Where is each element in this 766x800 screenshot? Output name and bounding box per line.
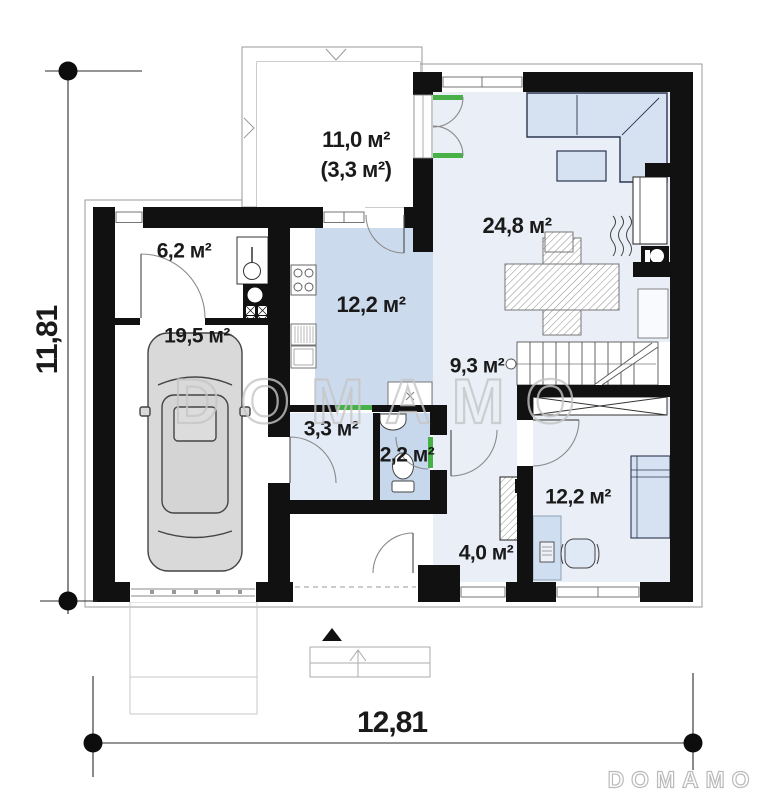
watermark-center: DOMAMO xyxy=(174,366,596,438)
dimension-height-label: 11,81 xyxy=(33,306,63,374)
computer-icon xyxy=(540,542,554,562)
window-icon xyxy=(556,582,640,602)
duct-niche xyxy=(638,289,668,338)
dimension-marker xyxy=(84,734,103,753)
desk-icon xyxy=(533,516,561,580)
slope-arrow-right-icon xyxy=(244,118,254,138)
dimension-marker xyxy=(59,62,78,81)
cooktop-icon xyxy=(291,265,316,295)
bed-icon xyxy=(631,456,670,538)
room-label-living-room: 24,8 м² xyxy=(482,215,551,237)
window-icon xyxy=(115,207,143,228)
entrance-arrow-icon xyxy=(322,628,342,641)
room-label-terrace-sub: (3,3 м²) xyxy=(321,159,392,181)
room-label-wc: 2,2 м² xyxy=(380,445,435,466)
dimension-marker xyxy=(59,592,78,611)
desk-chair-icon xyxy=(561,539,599,568)
floor-plan-canvas: 11,0 м² (3,3 м²) 6,2 м² 19,5 м² 12,2 м² … xyxy=(0,0,766,800)
room-label-garage: 19,5 м² xyxy=(164,326,230,347)
kitchen-vent-icon xyxy=(291,324,316,345)
window-icon xyxy=(323,207,365,228)
entrance-opening xyxy=(293,582,418,602)
coffee-table-icon xyxy=(557,151,606,181)
water-heater-icon xyxy=(237,237,268,284)
room-label-terrace: 11,0 м² xyxy=(322,129,390,151)
room-label-bedroom: 12,2 м² xyxy=(545,487,611,508)
dimension-width-label: 12,81 xyxy=(357,708,427,738)
window-icon xyxy=(442,72,523,92)
watermark-corner: DOMAMO xyxy=(608,767,757,794)
slope-arrow-down-icon xyxy=(326,49,346,60)
porch-steps xyxy=(310,647,430,677)
garage-door-icon xyxy=(130,582,256,602)
room-label-kitchen: 12,2 м² xyxy=(336,294,405,316)
dimension-marker xyxy=(684,734,703,753)
car-mirror-left xyxy=(140,407,150,416)
window-icon xyxy=(460,582,506,602)
driveway xyxy=(130,602,257,714)
kitchen-sink-cabinet-icon xyxy=(291,346,316,368)
room-label-boiler-room: 6,2 м² xyxy=(157,241,212,262)
room-label-utility: 4,0 м² xyxy=(459,543,514,564)
